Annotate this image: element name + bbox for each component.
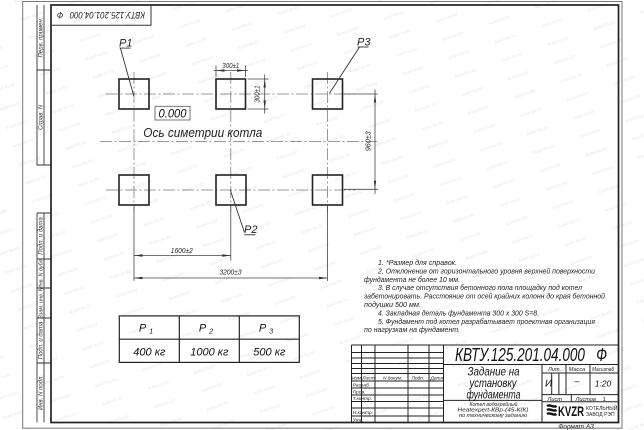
svg-text:Перв. примен.: Перв. примен. [38,18,44,58]
svg-text:Формат А3: Формат А3 [558,424,594,430]
svg-text:Подп. и дата: Подп. и дата [38,217,44,255]
svg-text:1600±2: 1600±2 [171,248,193,255]
svg-text:Р2: Р2 [244,224,257,236]
svg-text:N докум.: N докум. [383,375,402,381]
svg-text:Взам. инв. N: Взам. инв. N [38,287,44,319]
svg-text:0.000: 0.000 [159,106,187,120]
svg-text:установку: установку [469,378,518,390]
svg-text:Дата: Дата [430,375,444,381]
svg-text:Инв. N подл.: Инв. N подл. [38,375,44,410]
svg-text:И: И [545,379,553,390]
svg-text:Разраб.: Разраб. [353,382,370,388]
svg-text:500 кг: 500 кг [253,347,286,359]
svg-text:фундамента: фундамента [467,390,521,402]
svg-text:по нагрузкам на фундамент.: по нагрузкам на фундамент. [364,325,460,334]
svg-text:Р3: Р3 [357,36,371,48]
svg-text:Лит.: Лит. [547,367,561,373]
svg-text:Пров.: Пров. [353,389,366,395]
svg-text:1:20: 1:20 [595,379,612,389]
svg-text:3200±3: 3200±3 [220,269,242,276]
svg-text:по техническому заданию: по техническому заданию [459,413,528,419]
svg-text:960±3: 960±3 [365,131,372,151]
svg-text:Утв.: Утв. [353,417,364,423]
svg-text:Подп. и дата: Подп. и дата [38,321,44,359]
svg-text:КВТУ.125.201.04.000 Ф: КВТУ.125.201.04.000 Ф [455,345,607,365]
svg-text:Подп.: Подп. [412,375,425,381]
svg-text:KVZR: KVZR [558,403,584,419]
svg-text:ЗАВОД РЭП: ЗАВОД РЭП [586,412,615,418]
svg-text:1000 кг: 1000 кг [190,347,229,359]
svg-text:1: 1 [603,397,606,403]
svg-text:Н.контр.: Н.контр. [353,410,373,416]
svg-text:Масштаб: Масштаб [592,367,615,373]
svg-text:Лист: Лист [547,397,563,403]
svg-text:Изм.Лист: Изм.Лист [352,375,375,381]
svg-text:–: – [573,376,580,386]
svg-text:300±1: 300±1 [255,85,262,102]
svg-text:Справ. N: Справ. N [38,104,44,130]
svg-text:КВТУ.125.201.04.000 Ф: КВТУ.125.201.04.000 Ф [57,9,145,20]
svg-text:Т.контр.: Т.контр. [353,396,372,402]
svg-text:300±1: 300±1 [222,63,239,70]
svg-text:Листов: Листов [575,397,596,403]
svg-text:Р1: Р1 [119,37,132,49]
svg-text:Задание на: Задание на [468,367,520,379]
svg-text:Ось симетрии котла: Ось симетрии котла [143,126,262,140]
svg-text:КОТЕЛЬНЫЙ: КОТЕЛЬНЫЙ [586,404,618,412]
svg-text:Масса: Масса [569,367,586,373]
svg-text:Инв. N дубл.: Инв. N дубл. [38,258,44,289]
svg-text:400 кг: 400 кг [133,347,166,359]
